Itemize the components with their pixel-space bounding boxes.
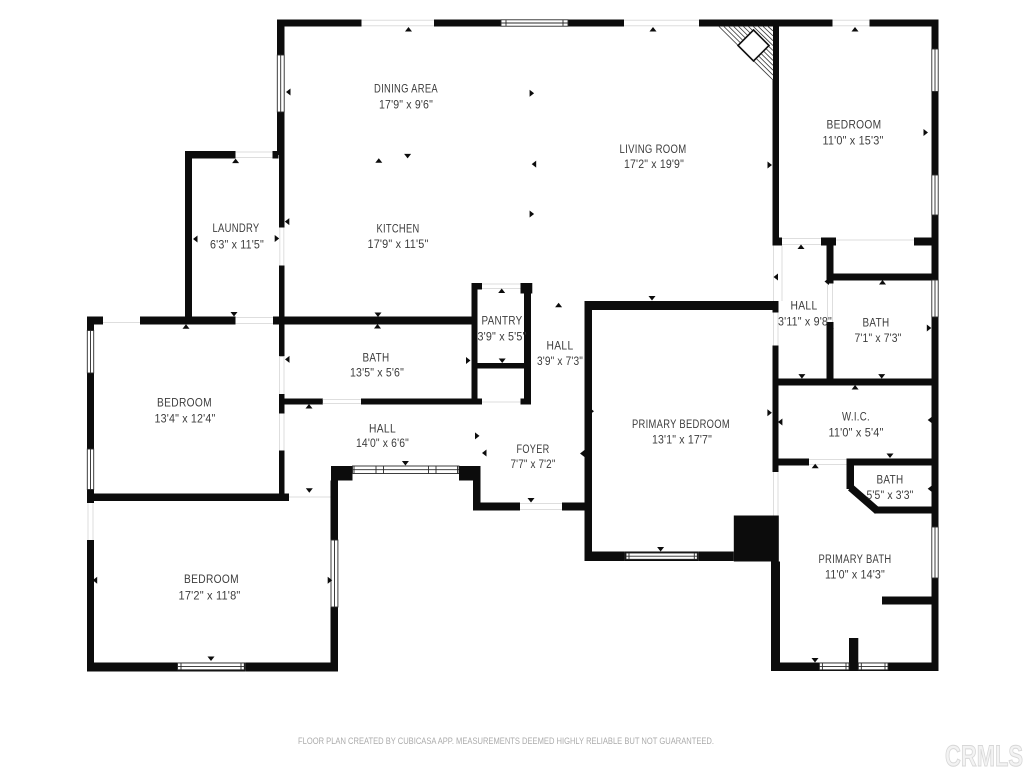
svg-text:BEDROOM: BEDROOM [827, 118, 882, 132]
svg-text:11'0" x 15'3": 11'0" x 15'3" [823, 134, 884, 148]
svg-text:11'0" x 5'4": 11'0" x 5'4" [829, 426, 884, 440]
svg-text:17'2" x 11'8": 17'2" x 11'8" [179, 589, 241, 603]
svg-text:13'1" x 17'7": 13'1" x 17'7" [652, 433, 712, 447]
svg-text:PRIMARY BEDROOM: PRIMARY BEDROOM [632, 417, 730, 431]
svg-text:3'9" x 5'5": 3'9" x 5'5" [478, 330, 527, 344]
svg-text:BEDROOM: BEDROOM [184, 572, 239, 586]
svg-text:PRIMARY BATH: PRIMARY BATH [819, 552, 892, 566]
svg-text:BATH: BATH [877, 473, 904, 487]
svg-text:5'5" x 3'3": 5'5" x 3'3" [867, 488, 914, 502]
svg-text:BEDROOM: BEDROOM [157, 396, 212, 410]
svg-text:FOYER: FOYER [517, 442, 550, 456]
svg-text:HALL: HALL [547, 339, 574, 353]
svg-text:6'3" x 11'5": 6'3" x 11'5" [210, 238, 264, 252]
svg-text:3'11" x 9'8": 3'11" x 9'8" [778, 315, 832, 329]
svg-text:7'1" x 7'3": 7'1" x 7'3" [855, 331, 902, 345]
svg-text:13'5" x 5'6": 13'5" x 5'6" [350, 366, 404, 380]
svg-text:PANTRY: PANTRY [482, 314, 523, 328]
svg-text:17'9" x 9'6": 17'9" x 9'6" [379, 98, 433, 112]
svg-text:DINING AREA: DINING AREA [374, 82, 438, 96]
svg-text:W.I.C.: W.I.C. [842, 410, 870, 424]
svg-text:FLOOR PLAN CREATED BY CUBICASA: FLOOR PLAN CREATED BY CUBICASA APP. MEAS… [298, 736, 714, 746]
svg-text:HALL: HALL [791, 299, 818, 313]
svg-text:BATH: BATH [363, 351, 390, 365]
svg-text:13'4" x 12'4": 13'4" x 12'4" [155, 412, 216, 426]
svg-text:CRMLS: CRMLS [945, 740, 1023, 768]
svg-text:3'9" x 7'3": 3'9" x 7'3" [537, 354, 583, 368]
svg-text:7'7" x 7'2": 7'7" x 7'2" [511, 457, 556, 471]
svg-text:17'2" x 19'9": 17'2" x 19'9" [624, 157, 684, 171]
svg-text:KITCHEN: KITCHEN [377, 222, 420, 236]
svg-text:BATH: BATH [863, 316, 890, 330]
svg-text:14'0" x 6'6": 14'0" x 6'6" [356, 436, 409, 450]
svg-text:HALL: HALL [369, 422, 396, 436]
svg-text:LIVING ROOM: LIVING ROOM [620, 142, 687, 156]
svg-text:11'0" x 14'3": 11'0" x 14'3" [825, 568, 885, 582]
svg-text:17'9" x 11'5": 17'9" x 11'5" [368, 237, 429, 251]
svg-text:LAUNDRY: LAUNDRY [213, 221, 260, 235]
